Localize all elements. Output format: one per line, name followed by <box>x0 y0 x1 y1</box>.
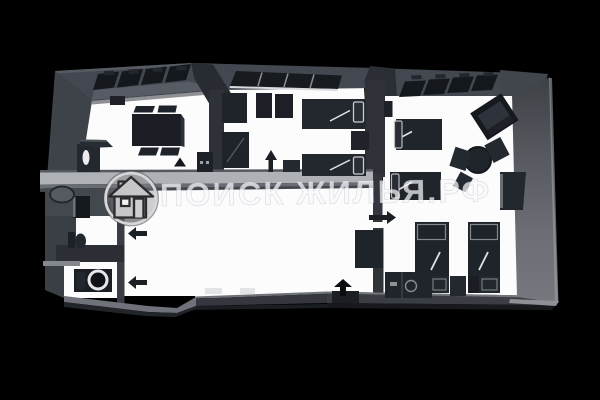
svg-text:ПОИСК ЖИЛЬЯ.РФ: ПОИСК ЖИЛЬЯ.РФ <box>160 172 492 213</box>
